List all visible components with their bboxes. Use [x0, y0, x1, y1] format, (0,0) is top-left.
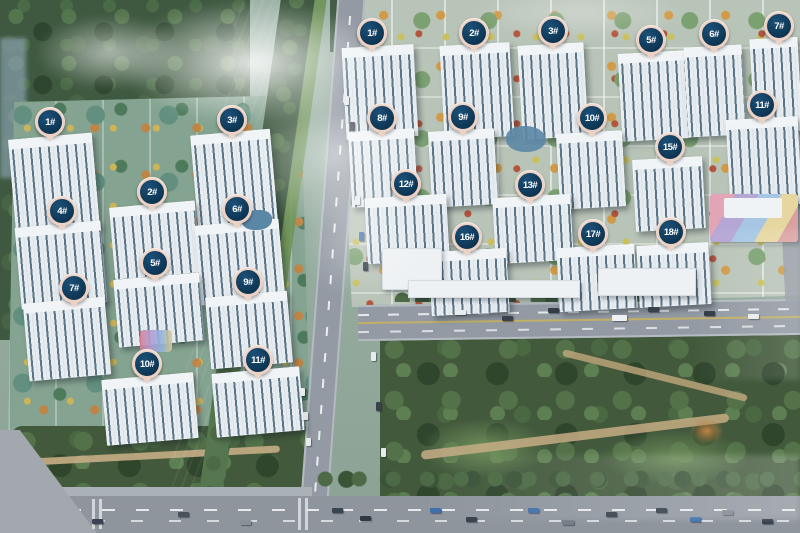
car: [360, 516, 371, 521]
marker-number-label: 1#: [38, 110, 62, 134]
building-marker-west-10: 10#: [132, 349, 162, 379]
building-marker-west-4: 4#: [47, 196, 77, 226]
marker-number-label: 1#: [360, 21, 384, 45]
road-haze: [420, 455, 800, 520]
building-marker-east-7: 7#: [764, 11, 794, 41]
building-marker-east-1: 1#: [357, 18, 387, 48]
marker-number-label: 2#: [140, 180, 164, 204]
marker-number-label: 11#: [750, 93, 774, 117]
car: [612, 315, 627, 321]
marker-number-label: 3#: [541, 19, 565, 43]
car: [240, 520, 251, 525]
edge-haze: [690, 230, 800, 380]
park-clearing: [690, 418, 724, 444]
building-marker-west-9: 9#: [233, 267, 263, 297]
marker-number-label: 10#: [580, 106, 604, 130]
building-marker-west-5: 5#: [140, 248, 170, 278]
building-marker-west-2: 2#: [137, 177, 167, 207]
kindergarten-roof: [724, 198, 782, 218]
car: [381, 448, 386, 457]
marker-number-label: 9#: [236, 270, 260, 294]
marker-number-label: 17#: [581, 222, 605, 246]
building-marker-west-6: 6#: [222, 194, 252, 224]
building-marker-west-3: 3#: [217, 105, 247, 135]
marker-number-label: 5#: [143, 251, 167, 275]
car: [371, 352, 376, 361]
cloud: [35, 15, 185, 90]
marker-number-label: 7#: [767, 14, 791, 38]
crosswalk-west: [92, 499, 106, 529]
marker-number-label: 3#: [220, 108, 244, 132]
marker-number-label: 2#: [462, 21, 486, 45]
building-marker-east-8: 8#: [367, 103, 397, 133]
marker-number-label: 16#: [455, 225, 479, 249]
marker-number-label: 9#: [451, 105, 475, 129]
building-marker-east-9: 9#: [448, 102, 478, 132]
building-marker-east-16: 16#: [452, 222, 482, 252]
building-marker-east-2: 2#: [459, 18, 489, 48]
building-marker-east-13: 13#: [515, 170, 545, 200]
marker-number-label: 18#: [659, 220, 683, 244]
marker-number-label: 8#: [370, 106, 394, 130]
east-pond: [506, 126, 546, 152]
aerial-rendering: 1#2#3#4#5#6#7#9#10#11#1#2#3#5#6#7#8#9#10…: [0, 0, 800, 533]
commercial-strip-2: [598, 268, 696, 296]
car: [300, 388, 305, 396]
crosswalk-center: [298, 498, 312, 530]
car: [548, 308, 559, 313]
marker-number-label: 7#: [62, 276, 86, 300]
building-marker-east-11: 11#: [747, 90, 777, 120]
building-marker-east-3: 3#: [538, 16, 568, 46]
car: [376, 402, 381, 411]
car: [303, 412, 308, 420]
building-marker-east-5: 5#: [636, 25, 666, 55]
car: [178, 512, 189, 517]
commercial-strip-1: [408, 280, 580, 298]
marker-number-label: 6#: [225, 197, 249, 221]
marker-number-label: 6#: [702, 22, 726, 46]
marker-number-label: 11#: [246, 348, 270, 372]
marker-number-label: 10#: [135, 352, 159, 376]
marker-number-label: 12#: [394, 172, 418, 196]
car: [306, 438, 311, 446]
building-marker-east-10: 10#: [577, 103, 607, 133]
marker-number-label: 15#: [658, 135, 682, 159]
car: [455, 310, 466, 315]
car: [92, 519, 103, 524]
car: [502, 316, 513, 321]
building-marker-east-15: 15#: [655, 132, 685, 162]
car: [562, 520, 574, 525]
building-marker-west-11: 11#: [243, 345, 273, 375]
car: [332, 508, 343, 513]
building-marker-west-1: 1#: [35, 107, 65, 137]
building-marker-east-6: 6#: [699, 19, 729, 49]
marker-number-label: 13#: [518, 173, 542, 197]
car: [648, 307, 659, 312]
residential-tower-west-7: [23, 297, 111, 382]
building-marker-west-7: 7#: [59, 273, 89, 303]
building-marker-east-17: 17#: [578, 219, 608, 249]
building-marker-east-12: 12#: [391, 169, 421, 199]
marker-number-label: 4#: [50, 199, 74, 223]
building-marker-east-18: 18#: [656, 217, 686, 247]
marker-number-label: 5#: [639, 28, 663, 52]
